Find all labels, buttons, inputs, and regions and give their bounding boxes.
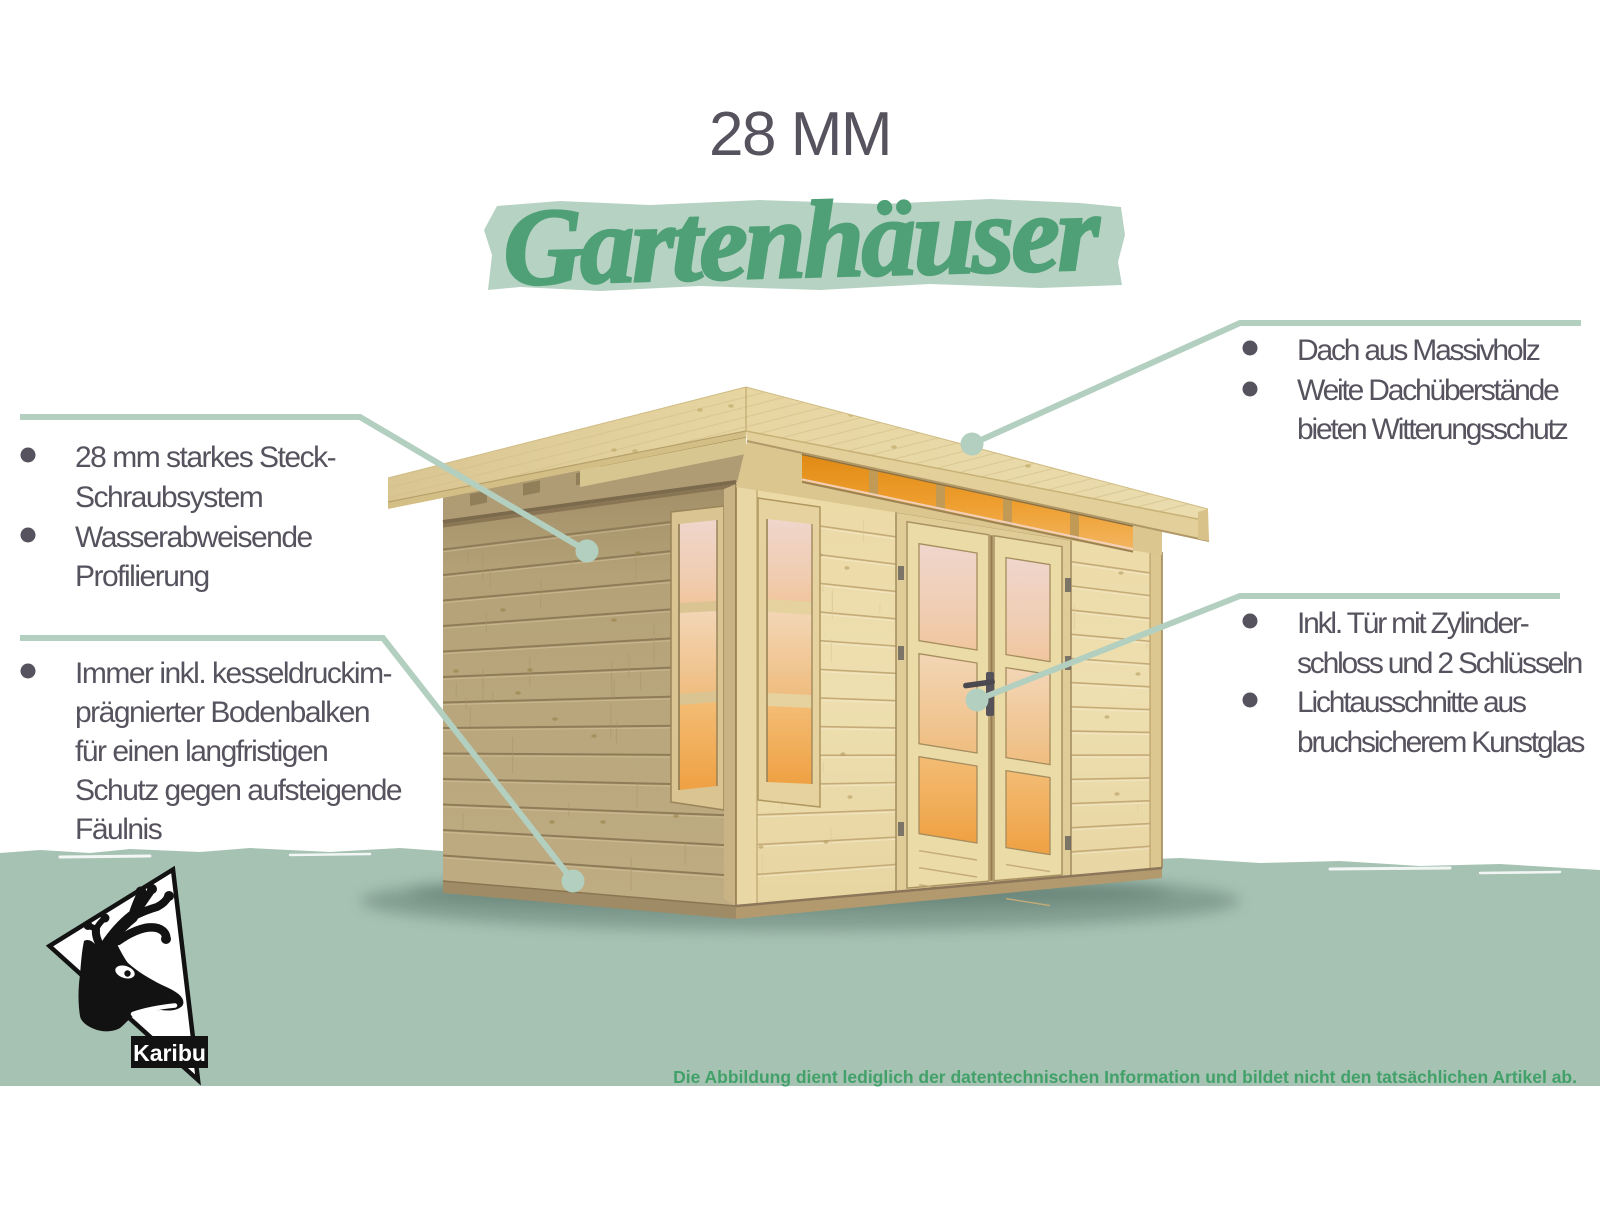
svg-text:Wasserabweisende: Wasserabweisende xyxy=(75,521,312,554)
svg-text:für einen langfristigen: für einen langfristigen xyxy=(75,735,327,768)
svg-text:prägnierter Bodenbalken: prägnierter Bodenbalken xyxy=(75,696,369,729)
svg-text:Schraubsystem: Schraubsystem xyxy=(75,481,263,514)
svg-text:bruchsicherem Kunstglas: bruchsicherem Kunstglas xyxy=(1297,726,1584,759)
svg-text:schloss und 2 Schlüsseln: schloss und 2 Schlüsseln xyxy=(1297,647,1582,680)
svg-text:Immer inkl. kesseldruckim-: Immer inkl. kesseldruckim- xyxy=(75,657,392,690)
svg-text:Dach aus Massivholz: Dach aus Massivholz xyxy=(1297,334,1540,367)
svg-text:Fäulnis: Fäulnis xyxy=(75,813,162,846)
svg-text:bieten Witterungsschutz: bieten Witterungsschutz xyxy=(1297,413,1568,446)
svg-text:Weite Dachüberstände: Weite Dachüberstände xyxy=(1297,374,1559,407)
svg-text:Profilierung: Profilierung xyxy=(75,560,209,593)
svg-text:28 mm starkes Steck-: 28 mm starkes Steck- xyxy=(75,441,336,474)
svg-text:Lichtausschnitte aus: Lichtausschnitte aus xyxy=(1297,686,1526,719)
svg-text:28 MM: 28 MM xyxy=(709,100,891,169)
svg-text:Inkl. Tür mit Zylinder-: Inkl. Tür mit Zylinder- xyxy=(1297,607,1529,640)
svg-text:Karibu: Karibu xyxy=(133,1040,206,1066)
svg-text:Die Abbildung dient lediglich: Die Abbildung dient lediglich der datent… xyxy=(673,1067,1577,1087)
svg-text:Gartenhäuser: Gartenhäuser xyxy=(502,171,1103,309)
svg-text:Schutz gegen aufsteigende: Schutz gegen aufsteigende xyxy=(75,774,402,807)
